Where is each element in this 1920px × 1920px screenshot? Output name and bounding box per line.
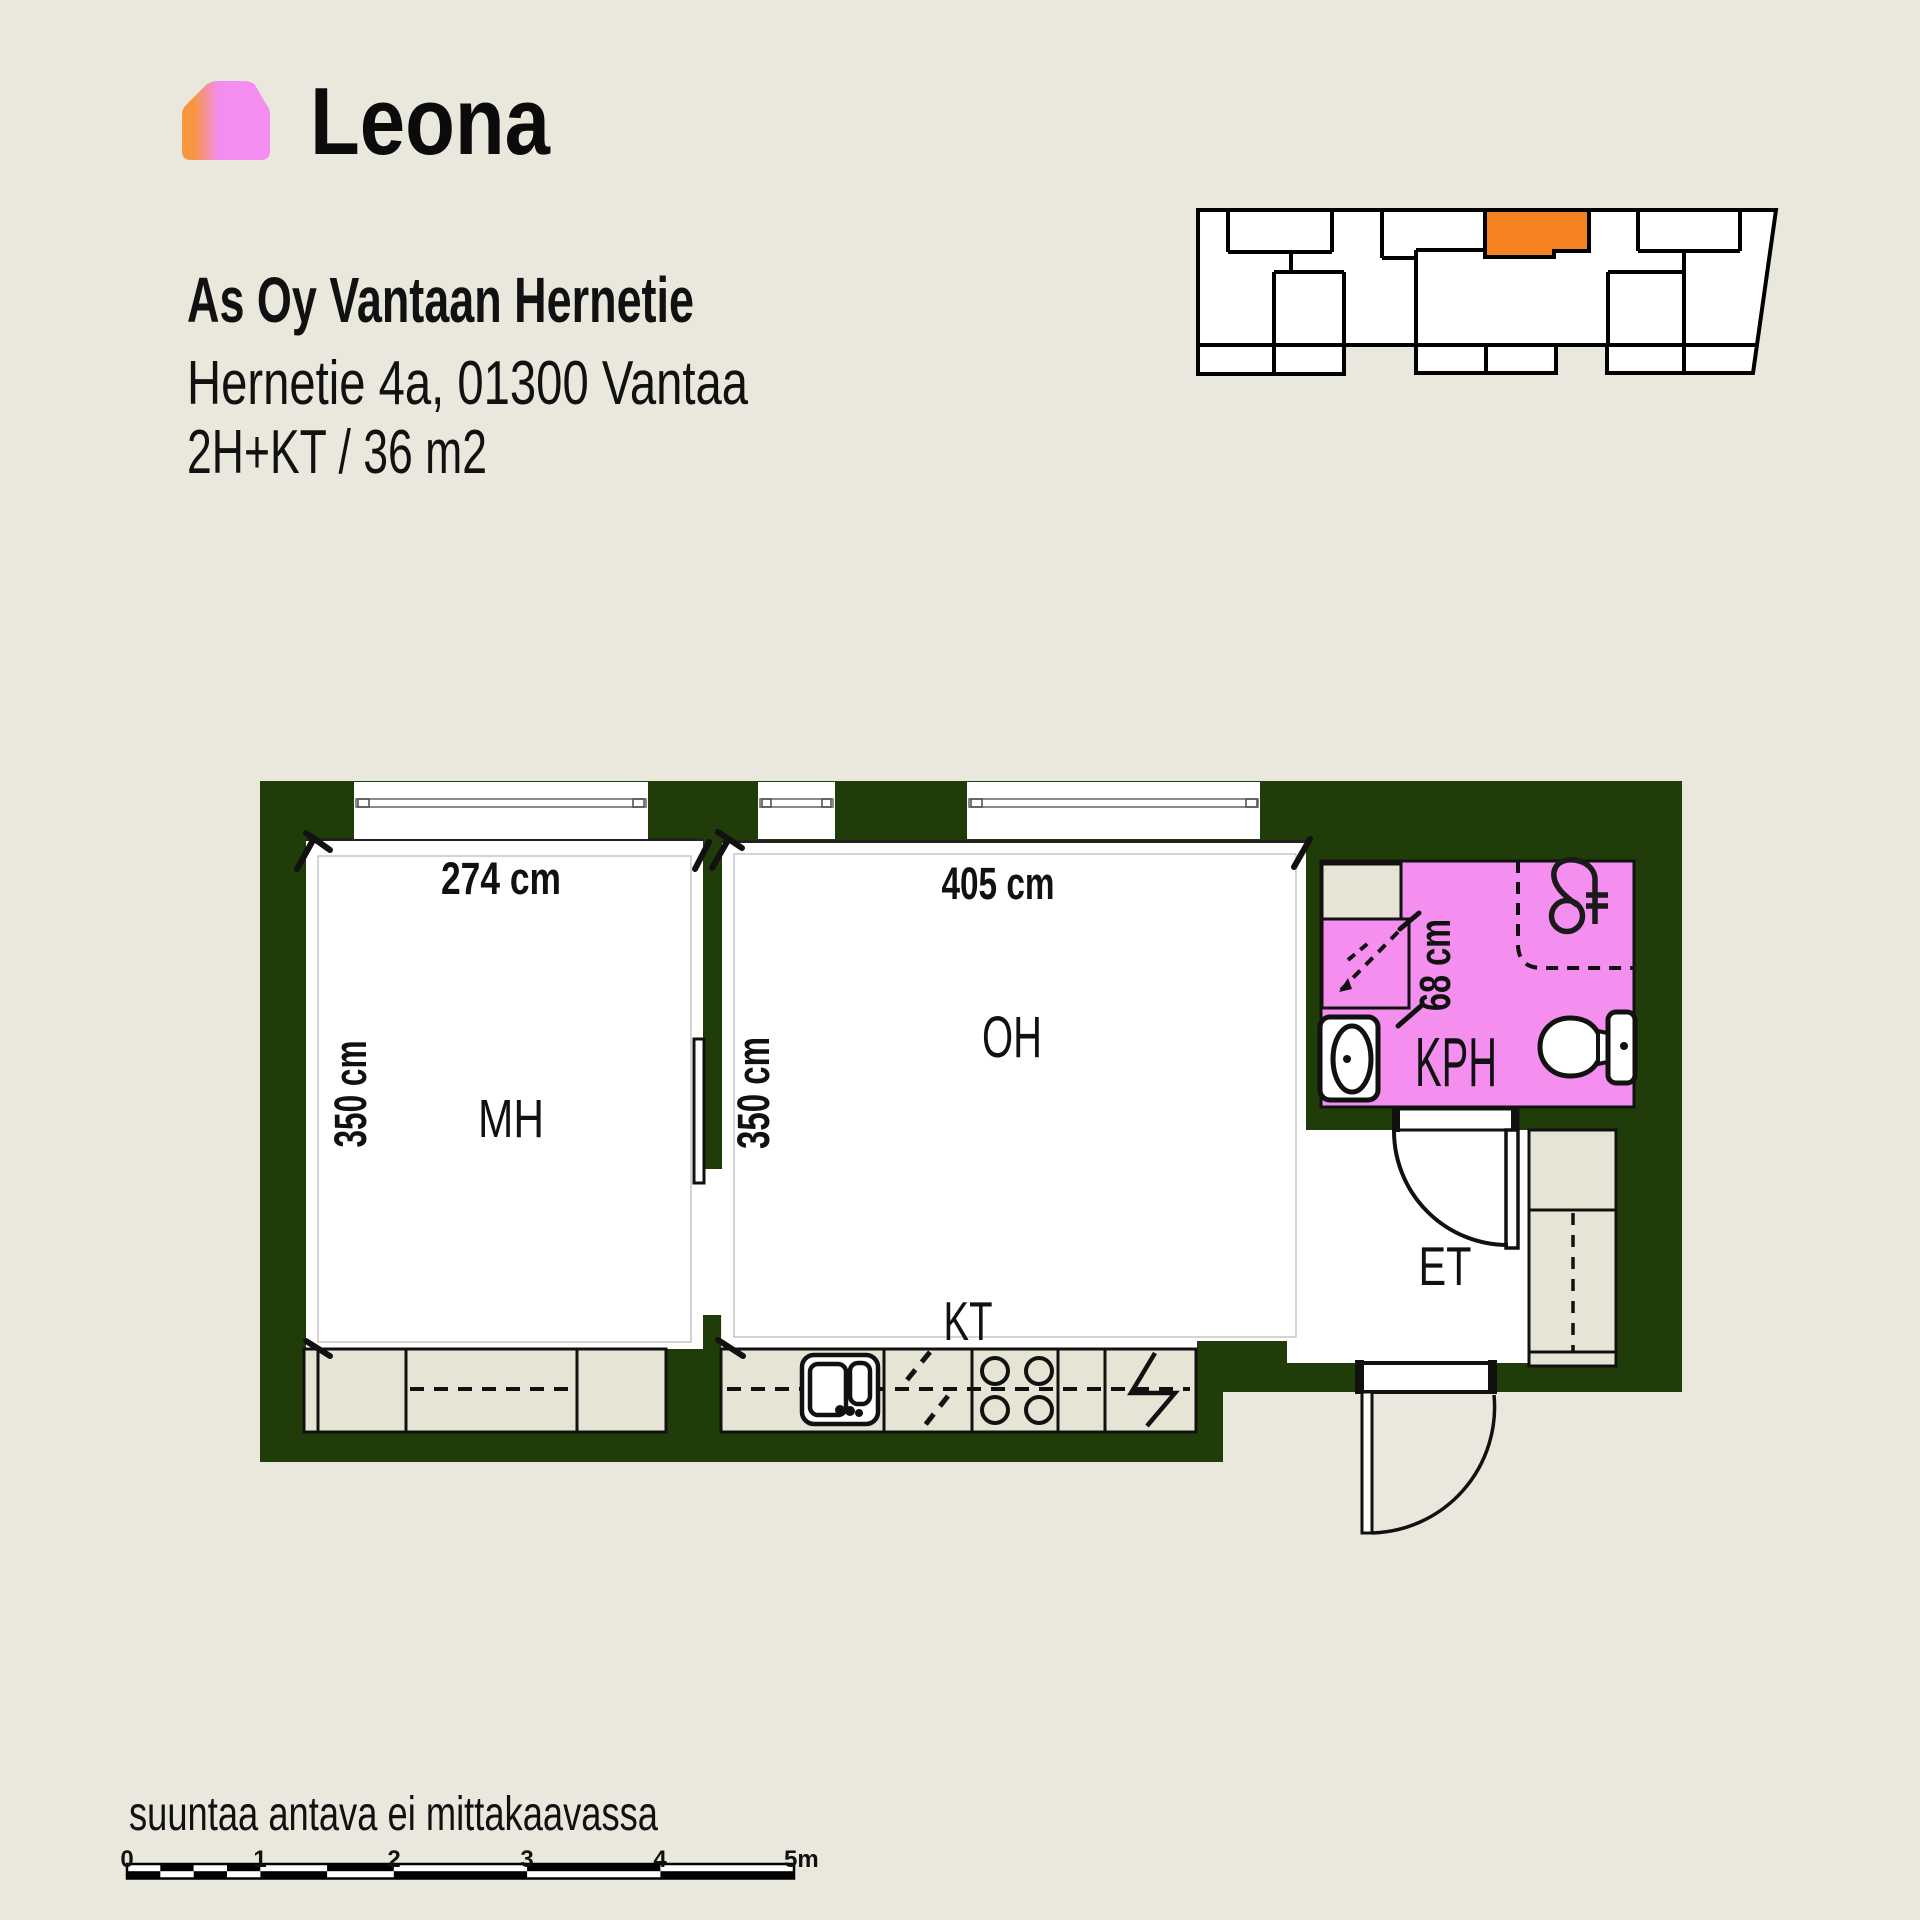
svg-text:350 cm: 350 cm bbox=[325, 1041, 376, 1148]
svg-text:274 cm: 274 cm bbox=[441, 853, 561, 904]
svg-text:2: 2 bbox=[387, 1846, 400, 1873]
svg-text:ET: ET bbox=[1419, 1235, 1472, 1297]
svg-text:Leona: Leona bbox=[310, 68, 551, 175]
svg-text:Hernetie 4a, 01300 Vantaa: Hernetie 4a, 01300 Vantaa bbox=[187, 349, 748, 418]
svg-text:3: 3 bbox=[520, 1846, 533, 1873]
svg-text:0: 0 bbox=[120, 1846, 133, 1873]
svg-text:OH: OH bbox=[982, 1005, 1042, 1070]
svg-text:405 cm: 405 cm bbox=[942, 858, 1055, 909]
svg-text:As Oy Vantaan Hernetie: As Oy Vantaan Hernetie bbox=[187, 264, 694, 336]
svg-text:2H+KT / 36 m2: 2H+KT / 36 m2 bbox=[187, 418, 487, 487]
svg-text:suuntaa antava ei mittakaavass: suuntaa antava ei mittakaavassa bbox=[129, 1788, 658, 1841]
svg-text:1: 1 bbox=[253, 1846, 266, 1873]
svg-text:68 cm: 68 cm bbox=[1411, 919, 1460, 1011]
svg-text:KPH: KPH bbox=[1415, 1023, 1497, 1101]
svg-text:MH: MH bbox=[478, 1089, 544, 1149]
svg-text:KT: KT bbox=[944, 1290, 993, 1352]
svg-text:5m: 5m bbox=[784, 1846, 819, 1873]
svg-text:4: 4 bbox=[653, 1846, 667, 1873]
svg-text:350 cm: 350 cm bbox=[728, 1037, 779, 1149]
